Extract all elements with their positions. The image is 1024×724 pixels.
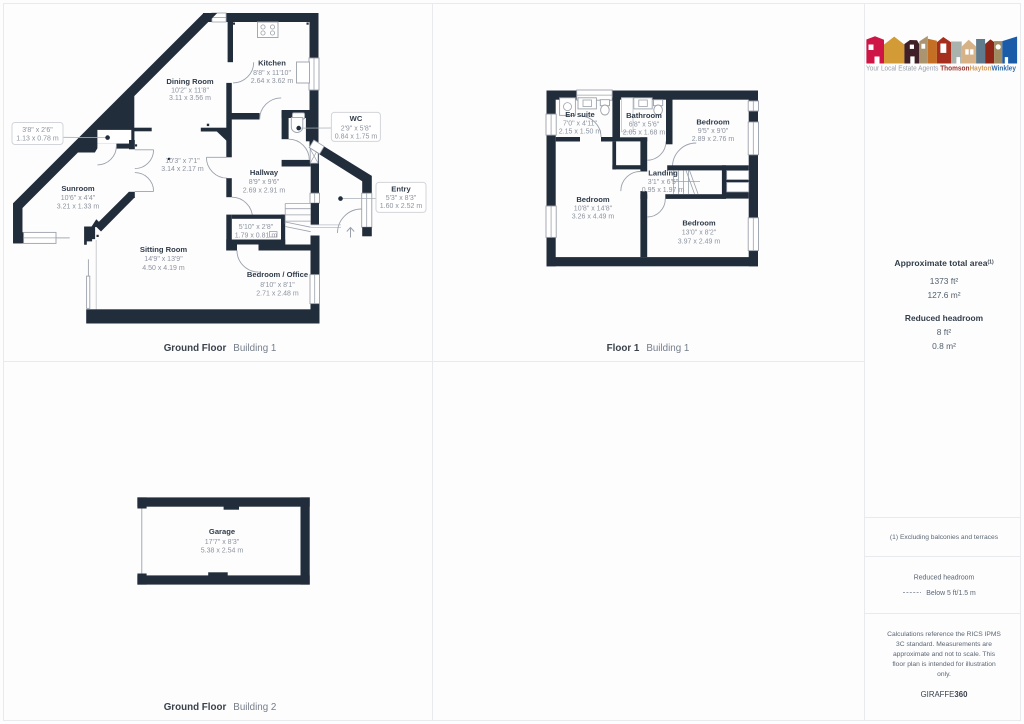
svg-text:Calculations reference the RIC: Calculations reference the RICS IPMS xyxy=(887,631,1001,638)
svg-text:3'8" x 2'6": 3'8" x 2'6" xyxy=(22,127,53,134)
svg-text:3.97 x 2.49 m: 3.97 x 2.49 m xyxy=(678,239,721,246)
svg-text:3.26 x 4.49 m: 3.26 x 4.49 m xyxy=(572,214,615,221)
svg-text:8'8" x 11'10": 8'8" x 11'10" xyxy=(253,70,291,77)
svg-text:3'1" x 6'5": 3'1" x 6'5" xyxy=(648,179,679,186)
svg-text:10'2" x 11'8": 10'2" x 11'8" xyxy=(171,88,209,95)
svg-text:6'8" x 5'6": 6'8" x 5'6" xyxy=(629,122,660,129)
svg-text:Bedroom: Bedroom xyxy=(682,219,716,228)
svg-text:Sitting Room: Sitting Room xyxy=(140,245,187,254)
svg-text:2.71 x 2.48 m: 2.71 x 2.48 m xyxy=(256,291,299,298)
svg-text:9'5" x 9'0": 9'5" x 9'0" xyxy=(698,128,729,135)
svg-text:Dining Room: Dining Room xyxy=(166,77,213,86)
svg-text:WC: WC xyxy=(350,114,363,123)
svg-text:13'0" x 8'2": 13'0" x 8'2" xyxy=(682,230,717,237)
svg-text:10'8" x 14'8": 10'8" x 14'8" xyxy=(574,206,613,213)
svg-text:7'0" x 4'11": 7'0" x 4'11" xyxy=(563,121,597,128)
svg-text:Ground FloorBuilding 1: Ground FloorBuilding 1 xyxy=(164,343,277,354)
svg-text:0.8 m²: 0.8 m² xyxy=(932,341,956,351)
svg-text:only.: only. xyxy=(937,671,951,678)
svg-text:Bedroom: Bedroom xyxy=(576,195,610,204)
svg-text:(1) Excluding balconies and te: (1) Excluding balconies and terraces xyxy=(890,534,999,541)
svg-text:Floor 1Building 1: Floor 1Building 1 xyxy=(607,343,690,354)
svg-text:En suite: En suite xyxy=(565,110,595,119)
svg-text:Reduced headroom: Reduced headroom xyxy=(905,313,983,323)
svg-text:5'3" x 8'3": 5'3" x 8'3" xyxy=(386,195,417,202)
svg-text:2.69 x 2.91 m: 2.69 x 2.91 m xyxy=(243,188,286,195)
svg-text:Below 5 ft/1.5 m: Below 5 ft/1.5 m xyxy=(926,590,976,597)
svg-text:1.60 x 2.52 m: 1.60 x 2.52 m xyxy=(380,203,423,210)
svg-text:3.11 x 3.56 m: 3.11 x 3.56 m xyxy=(169,95,211,102)
svg-text:Bedroom: Bedroom xyxy=(696,118,730,127)
svg-text:3.14 x 2.17 m: 3.14 x 2.17 m xyxy=(161,166,204,173)
svg-text:0.84 x 1.75 m: 0.84 x 1.75 m xyxy=(335,134,378,141)
svg-text:14'9" x 13'9": 14'9" x 13'9" xyxy=(144,256,183,263)
svg-text:5'10" x 2'8": 5'10" x 2'8" xyxy=(239,224,274,231)
svg-text:8'10" x 8'1": 8'10" x 8'1" xyxy=(260,282,295,289)
svg-text:Your Local Estate Agents Thoms: Your Local Estate Agents ThomsonHaytonWi… xyxy=(866,66,1016,73)
svg-text:Ground FloorBuilding 2: Ground FloorBuilding 2 xyxy=(164,702,277,713)
svg-text:0.95 x 1.97 m: 0.95 x 1.97 m xyxy=(642,187,685,194)
svg-text:Sunroom: Sunroom xyxy=(61,184,95,193)
svg-text:5.38 x 2.54 m: 5.38 x 2.54 m xyxy=(201,548,244,555)
svg-text:2.05 x 1.68 m: 2.05 x 1.68 m xyxy=(623,130,666,137)
svg-text:Bathroom: Bathroom xyxy=(626,111,662,120)
svg-text:Bedroom / Office: Bedroom / Office xyxy=(247,270,308,279)
svg-text:Landing: Landing xyxy=(648,169,678,178)
svg-text:Reduced headroom: Reduced headroom xyxy=(914,575,975,582)
svg-text:2'9" x 5'8": 2'9" x 5'8" xyxy=(341,126,372,133)
svg-text:GIRAFFE360: GIRAFFE360 xyxy=(921,690,968,699)
svg-text:1.13 x 0.78 m: 1.13 x 0.78 m xyxy=(16,136,59,143)
svg-text:Approximate total area(1): Approximate total area(1) xyxy=(894,258,994,268)
svg-text:4.50 x 4.19 m: 4.50 x 4.19 m xyxy=(142,265,185,272)
svg-text:approximate and not to scale.: approximate and not to scale. This xyxy=(893,651,996,658)
svg-text:1373 ft²: 1373 ft² xyxy=(930,276,959,286)
svg-text:127.6 m²: 127.6 m² xyxy=(927,290,960,300)
svg-text:10'6" x 4'4": 10'6" x 4'4" xyxy=(61,195,96,202)
svg-text:8 ft²: 8 ft² xyxy=(937,327,952,337)
svg-text:17'7" x 8'3": 17'7" x 8'3" xyxy=(205,539,240,546)
svg-text:Hallway: Hallway xyxy=(250,168,279,177)
svg-text:1.79 x 0.81 m: 1.79 x 0.81 m xyxy=(235,233,278,240)
svg-text:3.21 x 1.33 m: 3.21 x 1.33 m xyxy=(57,204,100,211)
svg-text:Kitchen: Kitchen xyxy=(258,59,286,68)
svg-text:2.89 x 2.76 m: 2.89 x 2.76 m xyxy=(692,136,735,143)
svg-text:3C standard. Measurements are: 3C standard. Measurements are xyxy=(896,641,992,648)
svg-text:Garage: Garage xyxy=(209,527,235,536)
svg-text:2.64 x 3.62 m: 2.64 x 3.62 m xyxy=(251,78,294,85)
svg-text:10'3" x 7'1": 10'3" x 7'1" xyxy=(165,158,200,165)
svg-text:floor plan is intended for ill: floor plan is intended for illustration xyxy=(892,661,996,668)
svg-text:2.15 x 1.50 m: 2.15 x 1.50 m xyxy=(559,129,602,136)
svg-text:Entry: Entry xyxy=(391,185,411,194)
svg-text:8'9" x 9'6": 8'9" x 9'6" xyxy=(249,179,280,186)
